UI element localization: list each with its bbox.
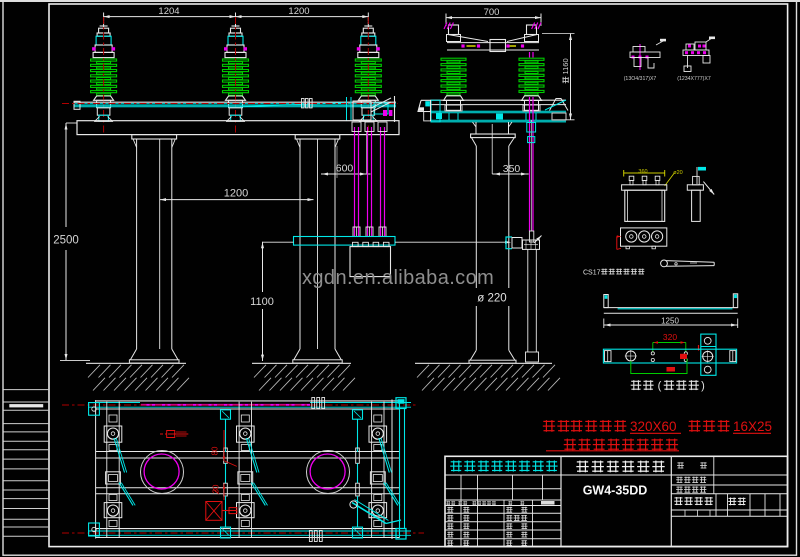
svg-text:16X25: 16X25 [733,419,772,434]
svg-text:): ) [701,380,705,392]
svg-text:30: 30 [212,484,221,493]
svg-text:(1234X777)X7: (1234X777)X7 [677,76,711,82]
svg-text:700: 700 [484,7,500,18]
svg-text:360: 360 [638,169,647,175]
svg-text:CS17: CS17 [583,269,601,276]
svg-text:1200: 1200 [224,188,248,200]
svg-text:ø 220: ø 220 [477,293,506,305]
svg-text:600: 600 [336,163,354,175]
svg-text:2500: 2500 [53,235,79,247]
svg-text:(13O4/317)X7: (13O4/317)X7 [624,76,657,82]
svg-text:1200: 1200 [288,6,309,17]
svg-text:320X60: 320X60 [630,419,677,434]
svg-text:xgdn.en.alibaba.com: xgdn.en.alibaba.com [302,267,494,289]
svg-text:80: 80 [211,446,220,455]
svg-text:1160: 1160 [561,58,570,74]
svg-text:GW4-35DD: GW4-35DD [583,484,648,498]
svg-text:350: 350 [503,163,521,175]
svg-text:1250: 1250 [661,317,679,326]
svg-text:1100: 1100 [250,296,274,308]
svg-text:1204: 1204 [158,6,179,17]
svg-text:ø20: ø20 [673,170,682,176]
svg-text:320: 320 [663,332,677,342]
svg-text:(: ( [658,380,662,392]
